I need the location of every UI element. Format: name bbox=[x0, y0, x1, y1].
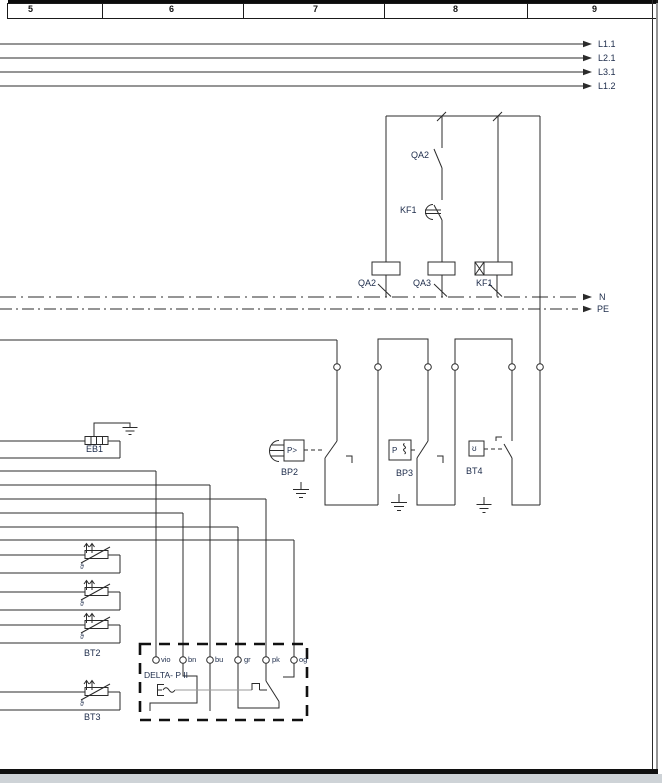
net-label-l1-1: L1.1 bbox=[598, 39, 616, 49]
wire-label-og: og bbox=[299, 656, 307, 664]
page-bottom-margin bbox=[0, 774, 662, 783]
schematic-page: 5 6 7 8 9 bbox=[0, 0, 662, 783]
net-label-n: N bbox=[599, 292, 606, 302]
contact-label-qa2: QA2 bbox=[411, 150, 429, 160]
delta-module-title: DELTA- P II bbox=[144, 670, 188, 680]
net-label-l2-1: L2.1 bbox=[598, 53, 616, 63]
wire-label-vio: vio bbox=[161, 656, 171, 664]
thermistor-theta-symbol: ϑ bbox=[80, 701, 84, 708]
label-bp3: BP3 bbox=[396, 468, 413, 478]
net-label-l3-1: L3.1 bbox=[598, 67, 616, 77]
wire-label-pk: pk bbox=[272, 656, 280, 664]
wire-label-bn: bn bbox=[188, 656, 196, 664]
label-bp2: BP2 bbox=[281, 467, 298, 477]
feeder-lines bbox=[0, 471, 294, 657]
thermistor-loops bbox=[0, 544, 120, 711]
relay-branch bbox=[372, 112, 540, 364]
bp2-pressure-symbol: P> bbox=[287, 446, 297, 455]
safety-chain bbox=[0, 339, 543, 505]
label-bt3: BT3 bbox=[84, 712, 101, 722]
phase-lines bbox=[0, 41, 592, 89]
coil-label-kf1: KF1 bbox=[476, 278, 493, 288]
coil-label-qa2: QA2 bbox=[358, 278, 376, 288]
contact-label-kf1: KF1 bbox=[400, 205, 417, 215]
bt4-thermostat-symbol: ʊ bbox=[472, 444, 477, 453]
wire-label-gr: gr bbox=[244, 656, 251, 664]
label-bt4: BT4 bbox=[466, 466, 483, 476]
net-label-l1-2: L1.2 bbox=[598, 81, 616, 91]
page-borders bbox=[653, 0, 658, 769]
thermistor-theta-symbol: ϑ bbox=[80, 601, 84, 608]
thermistor-theta-symbol: ϑ bbox=[80, 634, 84, 641]
schematic-canvas bbox=[0, 0, 662, 783]
thermistor-theta-symbol: ϑ bbox=[80, 564, 84, 571]
wire-label-bu: bu bbox=[215, 656, 223, 664]
label-eb1: EB1 bbox=[86, 444, 103, 454]
label-bt2: BT2 bbox=[84, 648, 101, 658]
n-pe-rails bbox=[0, 294, 592, 312]
bp3-pressure-symbol: P bbox=[392, 446, 397, 455]
coil-label-qa3: QA3 bbox=[413, 278, 431, 288]
net-label-pe: PE bbox=[597, 304, 609, 314]
